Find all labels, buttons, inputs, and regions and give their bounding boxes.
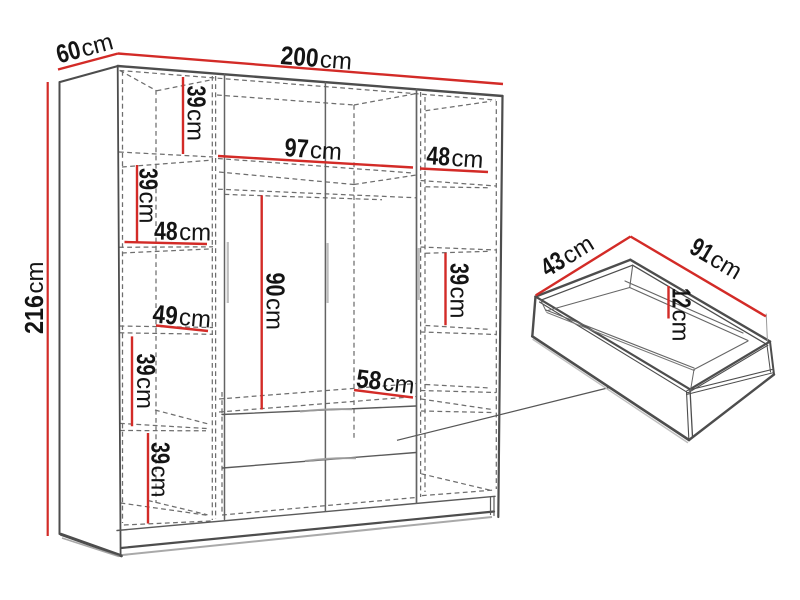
svg-text:48: 48 bbox=[426, 140, 452, 172]
svg-text:39: 39 bbox=[131, 354, 161, 376]
svg-text:cm: cm bbox=[319, 46, 353, 75]
svg-text:cm: cm bbox=[146, 466, 173, 498]
svg-text:cm: cm bbox=[381, 369, 416, 399]
svg-text:12: 12 bbox=[667, 288, 697, 308]
svg-text:cm: cm bbox=[261, 298, 288, 330]
svg-text:200: 200 bbox=[280, 40, 320, 73]
svg-text:39: 39 bbox=[134, 168, 164, 190]
svg-text:216: 216 bbox=[19, 295, 49, 334]
svg-text:cm: cm bbox=[22, 262, 49, 294]
svg-text:58: 58 bbox=[355, 363, 383, 396]
svg-text:39: 39 bbox=[445, 263, 475, 285]
svg-text:cm: cm bbox=[131, 377, 158, 409]
svg-text:cm: cm bbox=[445, 287, 472, 319]
svg-text:39: 39 bbox=[182, 86, 212, 108]
svg-text:48: 48 bbox=[154, 216, 178, 246]
svg-text:cm: cm bbox=[451, 145, 485, 174]
svg-text:39: 39 bbox=[146, 442, 176, 464]
svg-text:cm: cm bbox=[179, 219, 211, 247]
svg-text:cm: cm bbox=[309, 137, 343, 166]
svg-text:cm: cm bbox=[178, 304, 212, 334]
svg-text:97: 97 bbox=[284, 132, 310, 164]
svg-text:49: 49 bbox=[151, 299, 179, 331]
svg-text:cm: cm bbox=[182, 109, 209, 141]
svg-text:90: 90 bbox=[261, 273, 291, 297]
svg-text:cm: cm bbox=[667, 310, 694, 342]
